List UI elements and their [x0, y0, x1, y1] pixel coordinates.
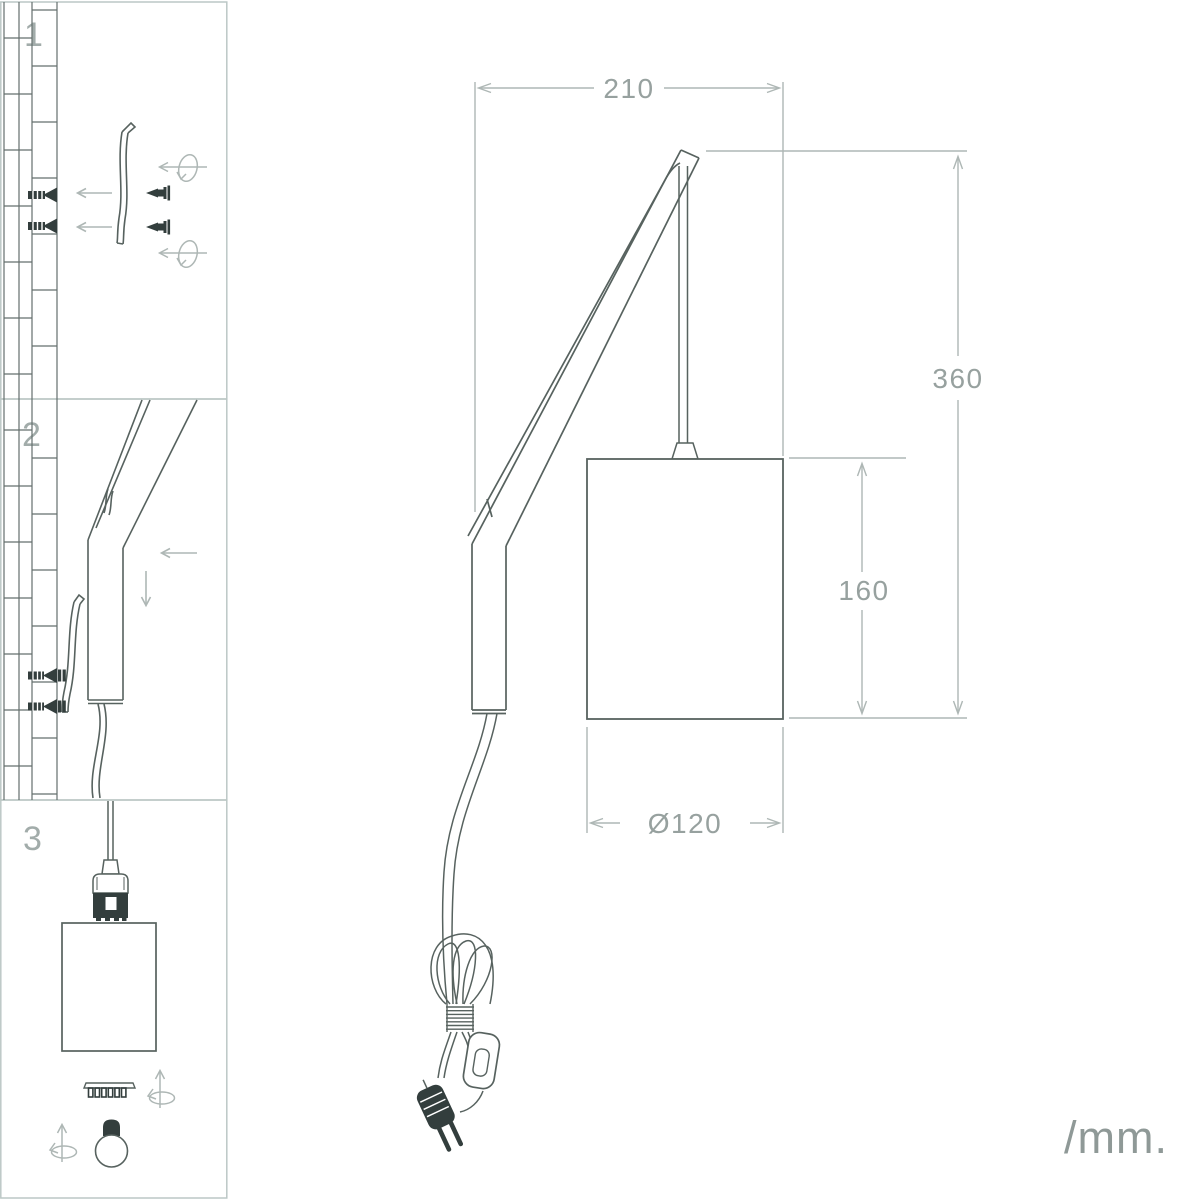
- unit-label: /mm.: [1064, 1112, 1168, 1163]
- screw-icon: [146, 220, 170, 235]
- left-arrow-icon: [162, 549, 198, 558]
- cord-wrap: [446, 1004, 474, 1032]
- lamp-wall-body: [472, 544, 506, 714]
- shade-diameter-label: Ø120: [648, 808, 723, 839]
- step-1-panel: 1: [4, 2, 207, 399]
- panel-2-border: [1, 399, 227, 800]
- shade-cord: [679, 166, 688, 443]
- inline-switch-icon: [462, 1031, 501, 1090]
- dimension-shade-height: 160: [789, 458, 906, 714]
- twist-rotation-icon: [148, 1071, 175, 1109]
- step-2-panel: 2: [4, 399, 197, 800]
- brick-wall: [4, 2, 57, 399]
- rotation-arrow-icon: [160, 239, 208, 270]
- down-arrow-icon: [142, 571, 151, 606]
- step-1-number: 1: [24, 16, 43, 54]
- dimension-total-width: 210: [475, 73, 783, 512]
- wall-lamp-drawing: 210 360 160: [410, 73, 983, 1153]
- technical-drawing: 1: [0, 0, 1200, 1200]
- mounting-bracket-icon: [117, 123, 135, 244]
- wall-anchor-with-screw-icon: [28, 699, 66, 714]
- mounting-bracket-icon: [62, 595, 84, 712]
- wall-anchor-with-screw-icon: [28, 668, 66, 683]
- lampshade-outline: [62, 923, 156, 1051]
- cord-coil: [431, 934, 493, 1004]
- cord-grip: [672, 443, 698, 459]
- step-panel-borders: [1, 2, 227, 1198]
- power-plug-icon: [410, 1074, 467, 1153]
- shade-height-label: 160: [838, 575, 889, 606]
- twist-rotation-icon: [50, 1125, 77, 1163]
- left-arrow-icon: [78, 223, 113, 232]
- step-3-panel: 3: [23, 801, 175, 1167]
- left-arrow-icon: [78, 189, 113, 198]
- brick-wall: [4, 399, 57, 800]
- total-height-label: 360: [932, 363, 983, 394]
- lampshade-outline: [587, 459, 783, 719]
- panel-1-border: [1, 2, 227, 399]
- pendant-cord: [108, 801, 113, 860]
- installation-diagram-page: 1: [0, 0, 1200, 1200]
- shade-ring-icon: [84, 1083, 135, 1097]
- dimension-shade-diameter: Ø120: [587, 727, 783, 839]
- lamp-socket-icon: [93, 860, 128, 921]
- rotation-arrow-icon: [160, 153, 208, 184]
- screw-icon: [146, 186, 170, 201]
- total-width-label: 210: [603, 73, 654, 104]
- step-3-number: 3: [23, 820, 42, 858]
- light-bulb-icon: [96, 1120, 128, 1168]
